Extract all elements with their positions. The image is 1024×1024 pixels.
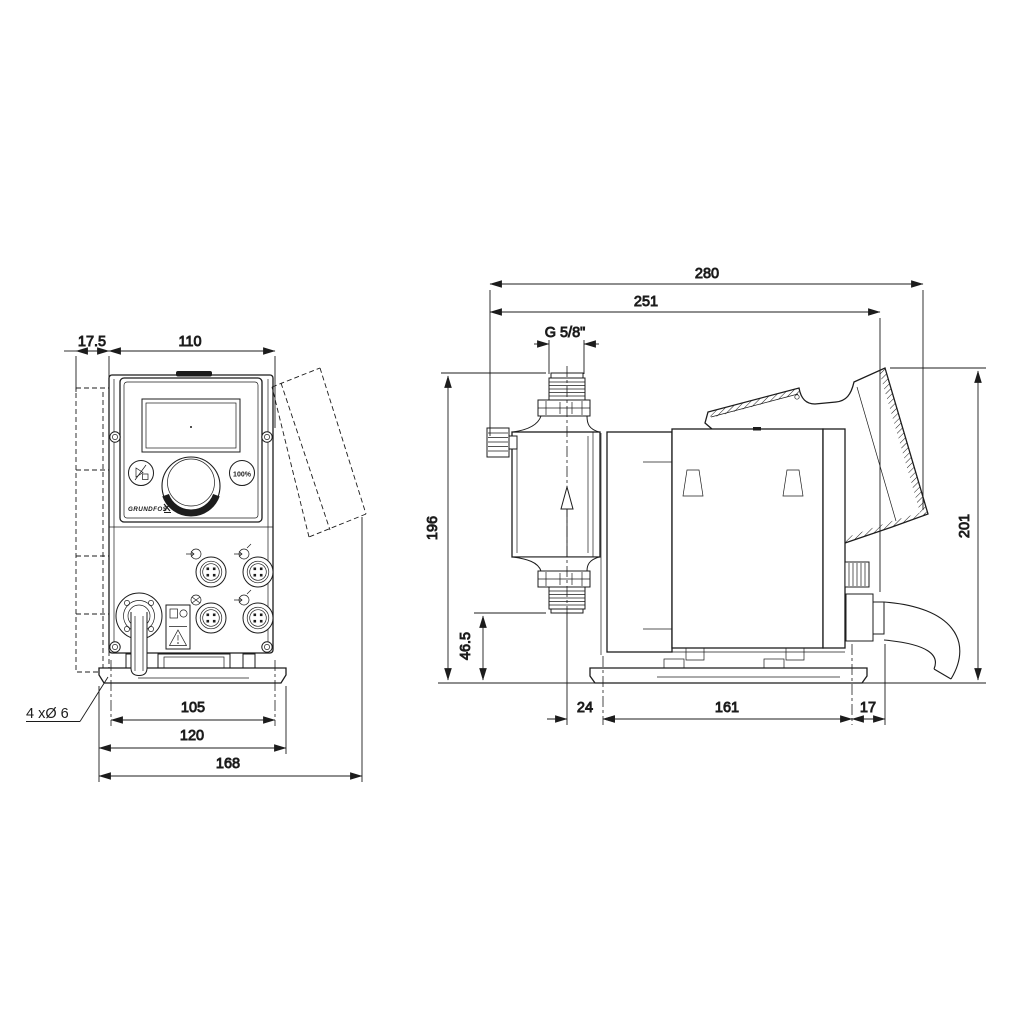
connector[interactable] <box>243 603 273 633</box>
top-tab <box>176 371 212 377</box>
side-base <box>590 648 867 683</box>
side-base-plate <box>590 668 867 683</box>
brand-logo: GRUNDFOS <box>128 504 171 513</box>
dim-foot-length: 161 <box>715 700 739 716</box>
control-panel: 100% GRUNDFOS <box>120 378 262 522</box>
dim-body-width: 110 <box>178 334 201 350</box>
head-body <box>512 432 600 557</box>
note-mounting-holes: 4 xØ 6 <box>26 706 69 722</box>
rotated-module-phantom <box>272 368 366 537</box>
connector[interactable] <box>196 603 226 633</box>
drawing-page: 100% GRUNDFOS <box>0 0 1024 1024</box>
dim-depth-to-cable: 251 <box>634 294 658 310</box>
dim-total-depth: 280 <box>695 266 719 282</box>
dim-front-overhang: 24 <box>577 700 593 716</box>
side-body <box>601 427 845 655</box>
dim-total-width: 168 <box>216 756 240 772</box>
dim-rear-overhang: 17 <box>860 700 876 716</box>
dosing-head <box>487 366 600 613</box>
dim-total-height: 201 <box>957 514 973 538</box>
power-cable <box>884 602 960 679</box>
dim-height-to-port: 196 <box>425 516 441 540</box>
side-view <box>487 366 960 683</box>
dim-hole-spacing: 105 <box>181 700 205 716</box>
wall-bracket-phantom <box>76 388 109 672</box>
mounting-holes-note: 4 xØ 6 <box>26 677 108 722</box>
dim-bracket-offset: 17.5 <box>78 334 106 350</box>
drain-tube <box>131 612 147 676</box>
front-view: 100% GRUNDFOS <box>76 368 366 683</box>
start-stop-button[interactable] <box>129 461 154 486</box>
dim-plate-width: 120 <box>180 728 204 744</box>
connector[interactable] <box>196 557 226 587</box>
run-button-label: 100% <box>233 471 252 478</box>
display <box>142 399 240 452</box>
connector[interactable] <box>243 557 273 587</box>
cable-gland <box>845 562 960 679</box>
front-base-plate <box>99 668 286 683</box>
dim-thread: G 5/8" <box>545 325 586 341</box>
hundred-percent-button[interactable]: 100% <box>230 461 255 486</box>
dim-port-height: 46.5 <box>458 632 474 660</box>
warning-label <box>166 605 190 649</box>
technical-drawing: 100% GRUNDFOS <box>0 0 1024 1024</box>
brand-logo-text: GRUNDFOS <box>128 506 168 513</box>
